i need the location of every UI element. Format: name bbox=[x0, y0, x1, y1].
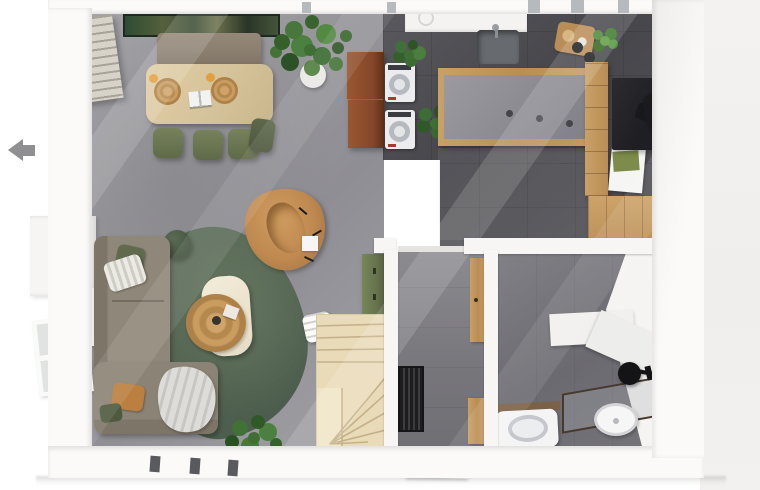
dining-bench bbox=[157, 33, 261, 66]
top-window-slit bbox=[528, 0, 540, 13]
green-notebook bbox=[612, 150, 639, 172]
door-handle bbox=[474, 298, 478, 302]
dining-chair bbox=[248, 117, 276, 153]
tumble-dryer bbox=[385, 110, 415, 149]
rain-shower-head bbox=[618, 362, 641, 385]
counter-plant bbox=[404, 50, 414, 60]
wall-stub bbox=[302, 236, 318, 251]
bottom-window-slit bbox=[227, 460, 238, 477]
fruit bbox=[206, 73, 215, 82]
placemat bbox=[211, 77, 238, 104]
kitchen-sink bbox=[477, 30, 519, 64]
green-pillow-small bbox=[99, 403, 123, 424]
dryer-detail bbox=[388, 144, 396, 147]
outer-wall-right bbox=[652, 0, 704, 458]
wall-stairs-hall bbox=[384, 250, 398, 448]
island-knob bbox=[506, 110, 513, 117]
back-arrow-tail[interactable] bbox=[22, 145, 35, 156]
top-window-slit bbox=[302, 2, 311, 13]
dryer-panel bbox=[388, 112, 411, 117]
washer-drum bbox=[389, 74, 410, 95]
toilet-seat bbox=[507, 414, 548, 443]
top-window-slit bbox=[618, 0, 629, 13]
island-top bbox=[444, 75, 594, 139]
wall-hall-bath bbox=[484, 250, 498, 448]
placemat bbox=[154, 78, 181, 105]
bottom-window-slit bbox=[149, 456, 160, 473]
plant-pot bbox=[300, 62, 326, 88]
black-jar bbox=[572, 42, 583, 53]
bottom-window-slit bbox=[189, 458, 200, 475]
exterior-ground-right bbox=[700, 0, 760, 490]
island-knob bbox=[536, 115, 543, 122]
magazine bbox=[188, 90, 212, 108]
top-window-slit bbox=[571, 0, 584, 13]
herb-plant bbox=[600, 36, 610, 46]
tray-item bbox=[212, 316, 221, 325]
island-knob bbox=[566, 120, 573, 127]
washer-panel bbox=[388, 65, 411, 70]
top-window-slit bbox=[387, 2, 396, 13]
dryer-drum bbox=[389, 121, 410, 142]
olive-cabinet bbox=[362, 254, 386, 320]
utility-cabinet-door bbox=[347, 52, 384, 99]
toilet bbox=[495, 408, 559, 449]
wash-basin bbox=[594, 403, 638, 436]
doorway-threshold bbox=[398, 246, 468, 252]
outer-wall-left bbox=[48, 8, 92, 458]
bread bbox=[562, 29, 576, 43]
cabinet-handle bbox=[373, 294, 376, 300]
outer-wall-top bbox=[48, 0, 704, 14]
floor-plant bbox=[248, 432, 260, 444]
kitchen-island bbox=[438, 68, 600, 146]
basin-drain bbox=[613, 418, 619, 424]
cabinet-handle bbox=[373, 268, 376, 274]
dining-chair bbox=[153, 128, 183, 158]
sofa-cushion-seam bbox=[112, 300, 164, 302]
oak-cabinet-run bbox=[585, 62, 608, 196]
back-arrow-head[interactable] bbox=[8, 139, 23, 161]
kitchen-floor-light-patch bbox=[438, 148, 602, 240]
faucet-stem bbox=[495, 29, 498, 38]
floorplan-viewport bbox=[0, 0, 760, 490]
washer-detail bbox=[388, 97, 396, 100]
utility-cabinet-door bbox=[348, 100, 384, 148]
washing-machine bbox=[385, 63, 415, 102]
fruit bbox=[149, 74, 158, 83]
outer-wall-bottom bbox=[48, 446, 704, 478]
entrance-doormat bbox=[398, 366, 424, 432]
monstera-plant bbox=[304, 44, 316, 56]
dining-chair bbox=[193, 130, 223, 160]
